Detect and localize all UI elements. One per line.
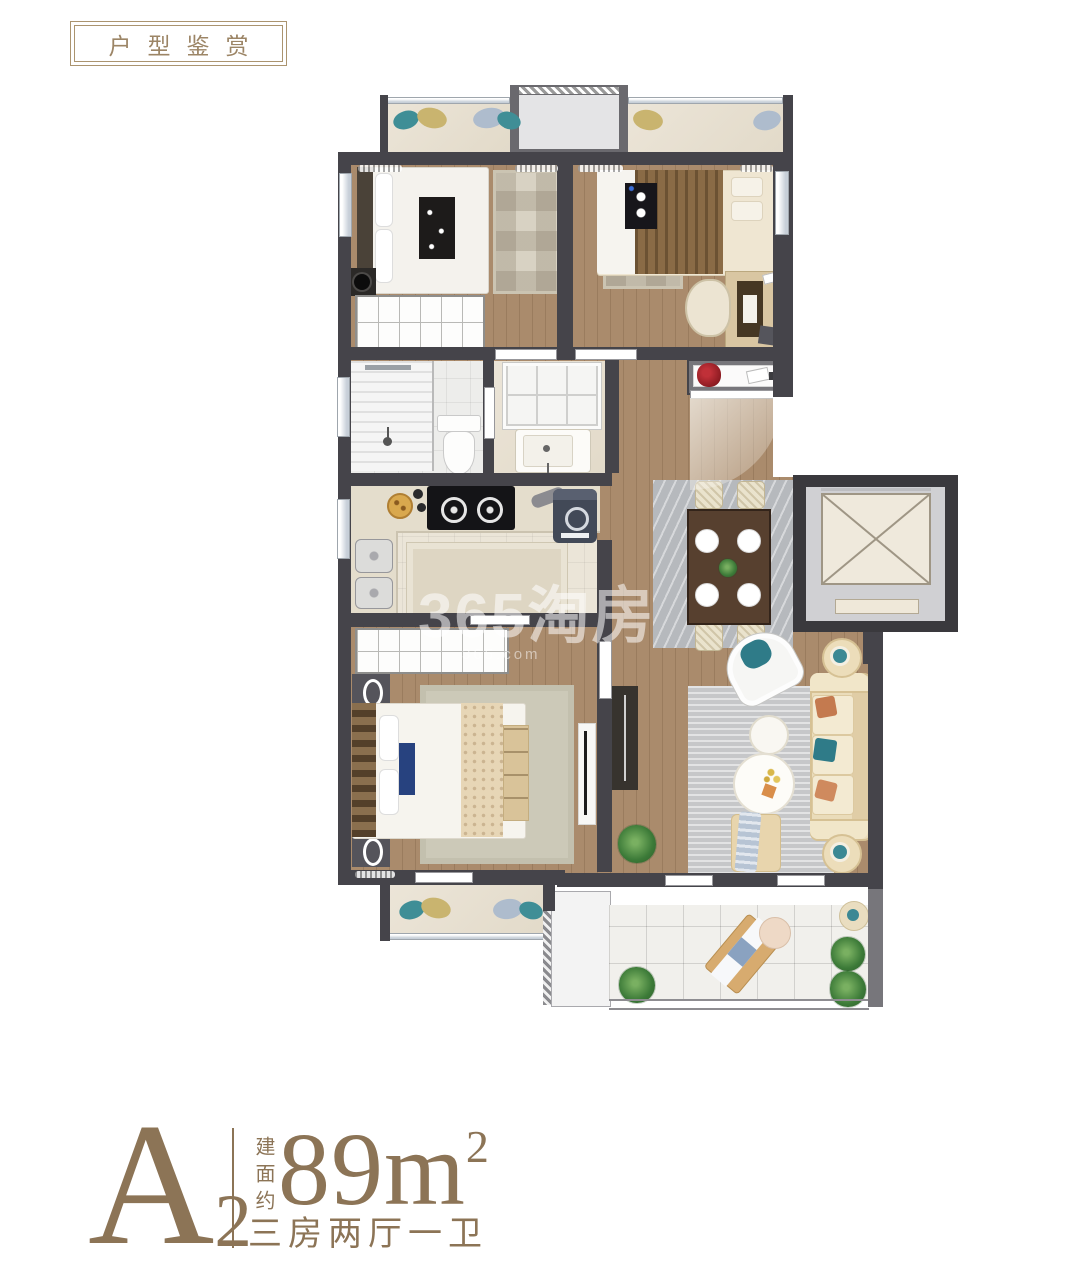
exterior-gap	[773, 392, 798, 477]
area-value: 89	[278, 1122, 384, 1218]
window-master-south	[415, 872, 473, 883]
master-speaker-ring-icon	[363, 838, 383, 866]
washing-machine-panel	[553, 489, 597, 500]
title-badge: 户型鉴赏	[70, 21, 287, 66]
unit-area: 建面约 89 m 2	[252, 1122, 489, 1218]
master-wardrobe	[355, 628, 509, 674]
unit-layout: 三房两厅一卫	[248, 1206, 488, 1255]
burner-icon	[477, 497, 503, 523]
kitchen-island-mat	[407, 543, 567, 619]
washing-machine-door-icon	[565, 507, 589, 531]
kitchen-jar	[413, 489, 423, 499]
elevator-door-line	[821, 488, 931, 491]
entry-flowers	[697, 363, 721, 387]
window-bedroom2	[339, 173, 352, 237]
area-label: 建面约	[252, 1136, 278, 1217]
dining-plate	[695, 583, 719, 607]
dining-plant	[719, 559, 737, 577]
wall-segment	[557, 152, 573, 349]
vanity-faucet-icon	[543, 445, 550, 452]
bedroom3-pillow	[731, 177, 763, 197]
dining-plate	[737, 583, 761, 607]
window-kitchen	[337, 499, 350, 559]
sofa-back	[852, 675, 868, 835]
dining-plate	[695, 529, 719, 553]
bedroom2-pillow	[375, 173, 393, 227]
window-bathroom	[337, 377, 350, 437]
master-tv-panel	[578, 723, 596, 825]
coffee-table-small	[749, 715, 789, 755]
kitchen-pass-window	[470, 615, 530, 625]
wall-segment	[338, 347, 793, 360]
shower-towel-bar	[365, 365, 411, 370]
kitchen-sink	[355, 577, 393, 609]
bedroom3-pillow	[731, 201, 763, 221]
kitchen-jar	[417, 503, 426, 512]
kitchen-sink	[355, 539, 393, 573]
side-table-bowl-teal	[833, 845, 847, 859]
area-exponent: 2	[466, 1124, 489, 1170]
door-bedroom2	[495, 349, 557, 360]
window-bedroom3	[775, 171, 789, 235]
wall-segment	[338, 613, 600, 627]
terrace-stool-center	[847, 909, 859, 921]
terrace-ac-platform	[551, 891, 611, 1007]
bedroom2-speaker-cone	[354, 274, 370, 290]
sofa-pillow-teal	[813, 738, 838, 763]
terrace-railing	[609, 999, 869, 1010]
vanity-window	[503, 363, 601, 429]
wall-segment	[605, 360, 619, 473]
toilet-bowl	[443, 431, 475, 475]
wall-segment	[338, 625, 351, 875]
master-tv-icon	[584, 731, 587, 815]
master-headboard	[352, 703, 376, 837]
toilet-tank	[437, 415, 481, 432]
terrace-table	[759, 917, 791, 949]
curtain-symbol	[578, 165, 623, 172]
window-top-right	[628, 97, 783, 104]
title-badge-label: 户型鉴赏	[93, 27, 265, 61]
window-living-south	[777, 875, 825, 886]
master-bench-cushions	[503, 725, 529, 821]
wall-segment	[543, 877, 555, 911]
wall-segment	[868, 889, 883, 1007]
bedroom2-pillow	[375, 229, 393, 283]
terrace-plant	[831, 937, 865, 971]
wall-segment	[783, 95, 793, 152]
wall-segment	[868, 662, 883, 889]
dining-chair	[695, 623, 723, 651]
master-blanket	[461, 703, 503, 837]
curtain-symbol	[355, 871, 395, 878]
footer-divider	[232, 1128, 234, 1248]
sofa-pillow-orange	[814, 695, 837, 718]
master-pillow	[379, 769, 399, 815]
window-living-south	[665, 875, 713, 886]
wall-segment	[380, 883, 390, 941]
kitchen-dish	[387, 493, 413, 519]
bedroom3-chair	[685, 279, 731, 337]
terrace-plant	[619, 967, 655, 1003]
top-shaft-inner	[519, 95, 619, 149]
bedroom2-bed-runner	[419, 197, 455, 259]
unit-name: A 2	[88, 1116, 252, 1253]
washing-machine-bar	[561, 533, 589, 538]
curtain-symbol	[740, 165, 773, 172]
bedroom3-bed-tray	[625, 183, 657, 229]
shower-head-icon	[383, 437, 392, 446]
curtain-symbol	[358, 165, 402, 172]
area-unit: m	[384, 1122, 466, 1218]
curtain-symbol	[515, 165, 558, 172]
master-pillow	[379, 715, 399, 761]
wall-segment	[380, 95, 388, 152]
wall-segment	[863, 632, 883, 664]
dining-chair	[737, 481, 765, 509]
dining-plate	[737, 529, 761, 553]
side-table-bowl-teal	[833, 649, 847, 663]
window-top-left	[385, 97, 510, 104]
wall-segment	[338, 473, 612, 486]
bedroom2-wardrobe	[355, 295, 485, 349]
living-plant	[618, 825, 656, 863]
vanity-faucet-stem	[547, 463, 549, 473]
door-bedroom3	[575, 349, 637, 360]
elevator-cab-icon	[821, 493, 931, 585]
burner-icon	[441, 497, 467, 523]
elevator-step	[835, 599, 919, 614]
floor-plan	[335, 85, 965, 1025]
shower-area	[350, 361, 434, 471]
bedroom3-notepad	[743, 295, 757, 323]
master-bed-runner	[399, 743, 415, 795]
door-bathroom	[484, 387, 495, 439]
bedroom2-rug	[493, 170, 563, 294]
door-master	[599, 641, 612, 699]
living-tv-icon	[624, 695, 626, 781]
top-shaft-hatch	[519, 87, 619, 94]
window-balcony-bottom	[388, 933, 545, 940]
floorplan-page: 户型鉴赏	[0, 0, 1066, 1277]
unit-letter: A	[88, 1116, 214, 1253]
